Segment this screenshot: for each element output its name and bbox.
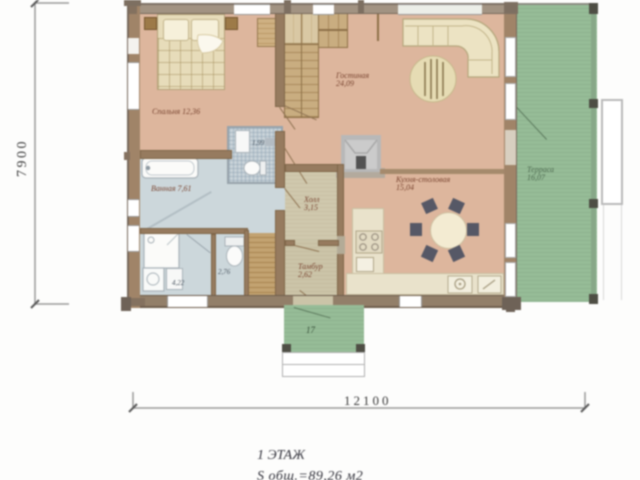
svg-text:7900: 7900 xyxy=(15,139,30,177)
svg-text:12100: 12100 xyxy=(344,393,392,408)
